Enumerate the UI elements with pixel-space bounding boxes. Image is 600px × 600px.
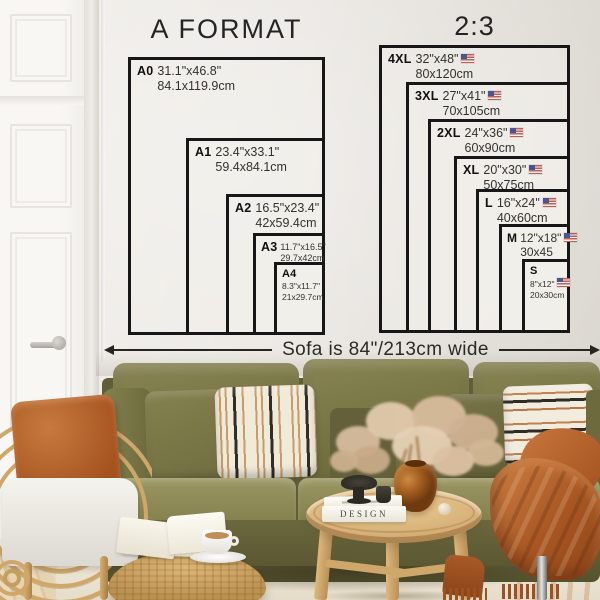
- size-cm: 21x29.7cm: [282, 292, 320, 303]
- size-label: A3: [261, 240, 277, 264]
- black-cup: [376, 486, 391, 503]
- size-inches: 23.4"x33.1": [215, 145, 287, 160]
- door-top-rail: [0, 96, 88, 105]
- size-inches: 27"x41": [443, 89, 486, 103]
- us-flag-icon: [557, 278, 570, 287]
- us-flag-icon: [564, 233, 577, 242]
- us-flag-icon: [543, 198, 556, 207]
- size-inches: 16"x24": [497, 196, 540, 210]
- size-label: 4XL: [388, 52, 412, 82]
- striped-pillow-vertical: [214, 384, 317, 479]
- size-box-a4: A4 8.3"x11.7" 21x29.7cm: [274, 262, 325, 335]
- decor-sphere: [438, 503, 451, 515]
- design-book: DESIGN: [322, 506, 406, 522]
- a-format-chart: A0 31.1"x46.8" 84.1x119.9cm A1 23.4"x33.…: [128, 57, 325, 335]
- us-flag-icon: [529, 165, 542, 174]
- size-cm: 59.4x84.1cm: [215, 160, 287, 175]
- armchair-cushion: [2, 478, 138, 566]
- wall-corner-trim: [101, 0, 105, 362]
- coffee-cup: [202, 530, 232, 554]
- sofa-leg: [537, 556, 547, 600]
- size-box-s: S 8"x12" 20x30cm: [522, 259, 570, 333]
- poster-size-guide-image: DESIGN A FORMAT A0 31.1"x46.8" 84.1x119.…: [0, 0, 600, 600]
- sofa-width-annotation: Sofa is 84"/213cm wide: [104, 337, 600, 363]
- size-cm: 80x120cm: [416, 67, 475, 82]
- arrow-left-icon: [104, 345, 114, 355]
- door-panel: [10, 14, 72, 82]
- door-handle-rosette: [52, 336, 66, 350]
- ratio-2-3-chart: 4XL 32"x48" 80x120cm 3XL 27"x41" 70x105c…: [379, 45, 570, 333]
- size-label: 2XL: [437, 126, 461, 156]
- us-flag-icon: [461, 54, 474, 63]
- book-spine-title: DESIGN: [340, 509, 388, 519]
- size-inches: 8.3"x11.7": [282, 281, 320, 292]
- size-inches: 32"x48": [416, 52, 459, 66]
- size-cm: 42x59.4cm: [255, 216, 319, 231]
- throw-fringe: [502, 584, 562, 599]
- door-panel: [10, 124, 72, 208]
- size-label: M: [507, 231, 517, 259]
- size-label: S: [530, 265, 565, 278]
- size-inches: 20"x30": [483, 163, 526, 177]
- size-label: A1: [195, 145, 211, 175]
- arrow-line: [499, 349, 590, 351]
- bowl-foot: [347, 498, 371, 504]
- us-flag-icon: [488, 91, 501, 100]
- size-cm: 70x105cm: [443, 104, 502, 119]
- size-cm: 84.1x119.9cm: [157, 79, 235, 94]
- size-label: A0: [137, 64, 153, 94]
- size-cm: 30x45: [520, 245, 577, 259]
- size-inches: 24"x36": [465, 126, 508, 140]
- cup-handle: [229, 536, 239, 546]
- size-inches: 31.1"x46.8": [157, 64, 235, 79]
- arrow-line: [114, 349, 272, 351]
- sofa-width-label: Sofa is 84"/213cm wide: [272, 339, 499, 361]
- rattan-spiral: [3, 569, 21, 587]
- size-label: 3XL: [415, 89, 439, 119]
- ratio-2-3-title: 2:3: [379, 11, 570, 42]
- throw-fringe: [443, 588, 487, 600]
- size-inches: 8"x12": [530, 279, 554, 289]
- a-format-title: A FORMAT: [128, 14, 325, 45]
- size-cm: 60x90cm: [465, 141, 524, 156]
- size-inches: 16.5"x23.4": [255, 201, 319, 216]
- size-inches: 12"x18": [520, 231, 561, 245]
- us-flag-icon: [510, 128, 523, 137]
- arrow-right-icon: [590, 345, 600, 355]
- size-label: A4: [282, 268, 320, 281]
- size-inches: 11.7"x16.5": [280, 242, 325, 253]
- size-cm: 20x30cm: [530, 290, 565, 301]
- size-label: A2: [235, 201, 251, 231]
- armchair-leg: [100, 556, 108, 600]
- size-label: L: [485, 196, 493, 226]
